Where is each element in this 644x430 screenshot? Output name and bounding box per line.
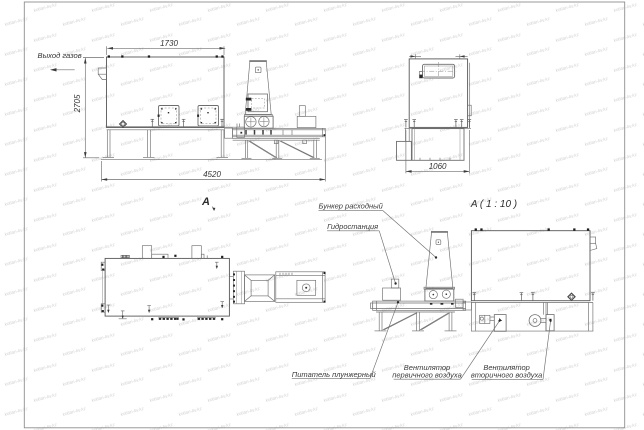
svg-text:вторичного воздуха: вторичного воздуха bbox=[471, 371, 542, 380]
svg-text:Гидростанция: Гидростанция bbox=[327, 222, 378, 231]
svg-text:Питатель плунжерный: Питатель плунжерный bbox=[292, 370, 377, 379]
svg-text:первичного воздуха: первичного воздуха bbox=[392, 371, 462, 380]
svg-text:1730: 1730 bbox=[160, 39, 178, 48]
svg-text:Бункер расходный: Бункер расходный bbox=[319, 202, 384, 211]
svg-text:2705: 2705 bbox=[73, 94, 82, 113]
svg-text:A: A bbox=[201, 196, 210, 208]
svg-text:4520: 4520 bbox=[203, 170, 221, 179]
svg-text:A ( 1 : 10 ): A ( 1 : 10 ) bbox=[470, 199, 517, 210]
svg-text:1060: 1060 bbox=[429, 162, 447, 171]
svg-text:Выход газов: Выход газов bbox=[38, 51, 82, 60]
